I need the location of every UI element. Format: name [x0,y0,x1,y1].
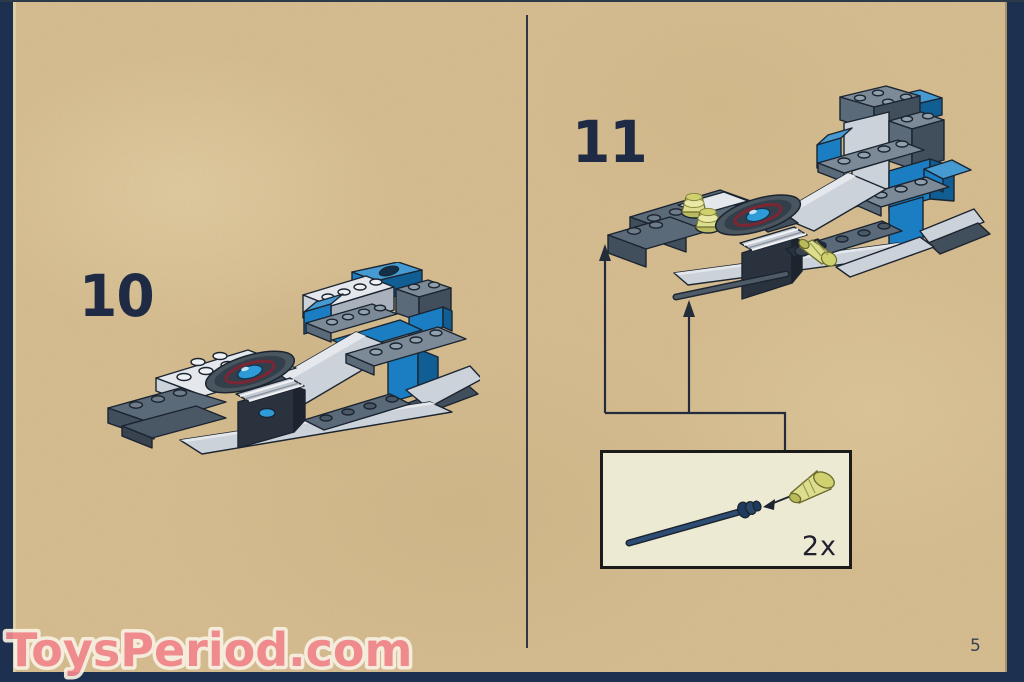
watermark: ToysPeriod.com [0,620,440,682]
assembly-arrow-right [683,300,695,413]
watermark-text: ToysPeriod.com [6,623,412,677]
page-left-edge-highlight [13,0,16,682]
step-10-model-illustration [100,262,480,494]
page-left-border [0,0,13,682]
black-antenna-rod-part [629,500,762,543]
assembly-arrow-left [599,244,611,413]
parts-callout-box: 2x [600,450,852,569]
quantity-label: 2x [802,531,837,562]
trans-yellow-cone-part [788,469,837,505]
page-right-border [1007,0,1024,682]
column-divider [526,15,528,648]
page-number: 5 [970,636,981,656]
page-top-edge-line [0,0,1024,2]
instruction-page: 10 11 [0,0,1024,682]
assembly-arrows [596,242,796,456]
